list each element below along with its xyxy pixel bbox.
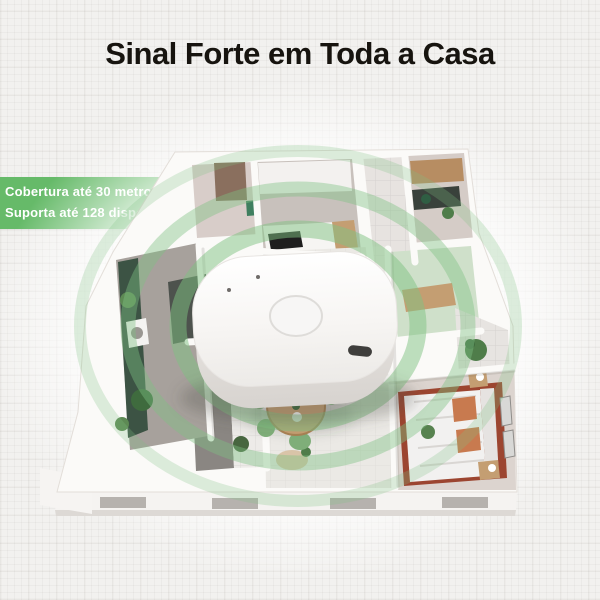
floorplan-3d-illustration [0, 0, 600, 600]
pairing-button [270, 296, 322, 336]
led-hole [256, 275, 260, 279]
pillow [452, 396, 477, 422]
led-hole [227, 288, 231, 292]
product-marketing-image: Sinal Forte em Toda a Casa Cobertura até… [0, 0, 600, 600]
smart-hub-device [180, 249, 416, 424]
wall-frame [503, 430, 515, 458]
